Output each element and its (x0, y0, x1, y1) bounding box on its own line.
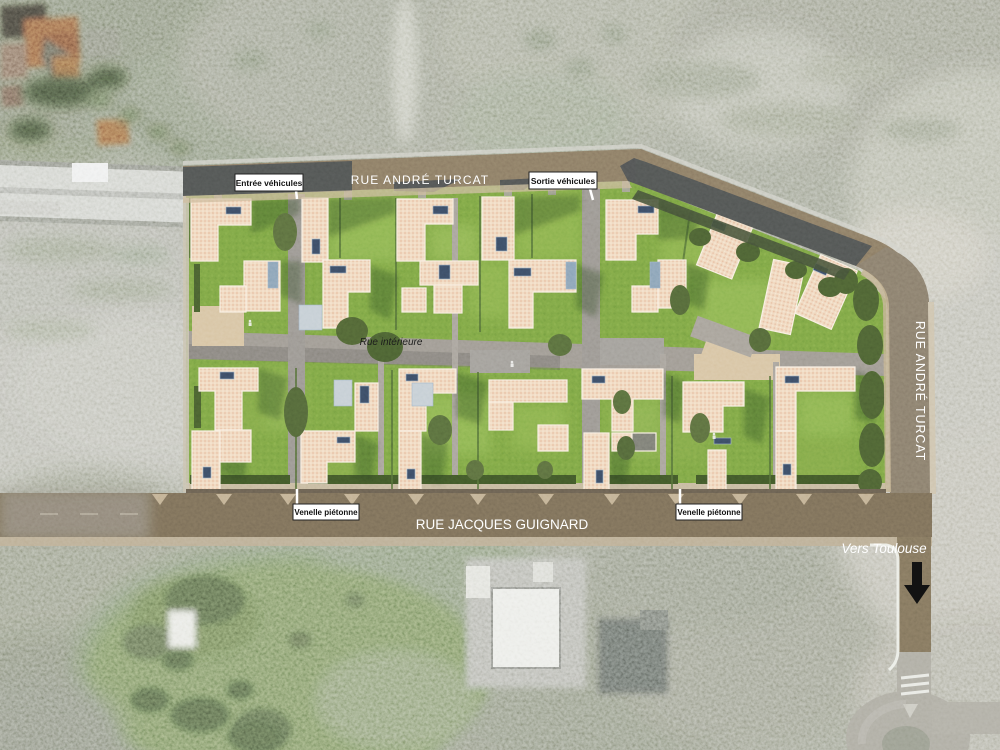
svg-text:Venelle piétonne: Venelle piétonne (294, 508, 358, 517)
svg-text:RUE JACQUES GUIGNARD: RUE JACQUES GUIGNARD (416, 517, 589, 532)
svg-text:RUE ANDRÉ TURCAT: RUE ANDRÉ TURCAT (351, 172, 490, 187)
svg-text:Entrée véhicules: Entrée véhicules (236, 178, 303, 188)
svg-text:RUE ANDRÉ TURCAT: RUE ANDRÉ TURCAT (913, 321, 928, 461)
svg-text:Sortie véhicules: Sortie véhicules (531, 176, 596, 186)
svg-text:Venelle piétonne: Venelle piétonne (677, 508, 741, 517)
svg-text:Rue intérieure: Rue intérieure (360, 337, 423, 348)
svg-text:Vers Toulouse: Vers Toulouse (841, 541, 926, 556)
